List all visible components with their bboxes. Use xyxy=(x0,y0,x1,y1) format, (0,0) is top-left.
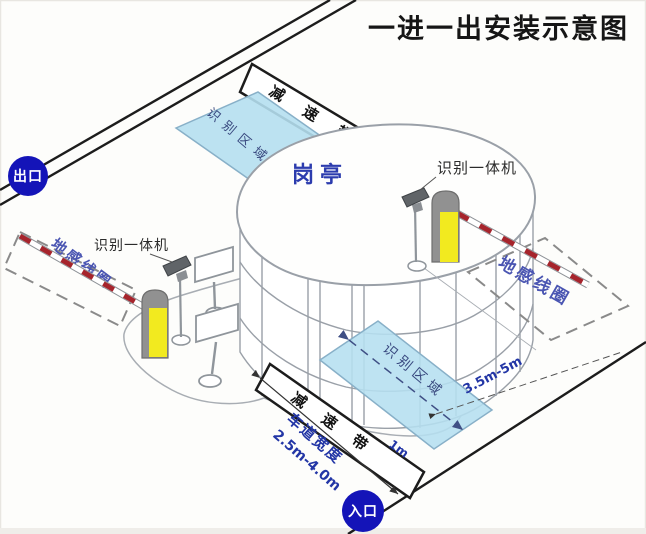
left-barrier-gate xyxy=(20,236,168,358)
image-border-bottom xyxy=(0,528,646,534)
entrance-badge-label: 入口 xyxy=(348,504,378,520)
exit-badge: 出口 xyxy=(8,156,48,196)
left-camera-pole xyxy=(180,278,181,337)
right-reader-label: 识别一体机 xyxy=(437,159,517,177)
sign-b-base xyxy=(199,375,221,387)
page-title: 一进一出安装示意图 xyxy=(368,13,629,45)
left-reader-label: 识别一体机 xyxy=(94,238,169,254)
entrance-badge: 入口 xyxy=(342,490,384,532)
installation-diagram: 减速带 识别区域 岗亭 xyxy=(0,0,646,534)
right-camera-base xyxy=(408,261,426,271)
left-camera-icon xyxy=(163,256,191,276)
left-reader-leader-line xyxy=(150,254,172,262)
exit-badge-label: 出口 xyxy=(13,168,43,185)
right-barrier-post-panel xyxy=(440,212,458,262)
left-barrier-post-panel xyxy=(149,308,167,357)
sign-a-board xyxy=(195,247,233,282)
sign-a-pole xyxy=(214,282,215,309)
right-camera-pole xyxy=(415,205,416,262)
diagram-canvas: 减速带 识别区域 岗亭 xyxy=(0,0,646,534)
booth-label: 岗亭 xyxy=(292,162,348,188)
